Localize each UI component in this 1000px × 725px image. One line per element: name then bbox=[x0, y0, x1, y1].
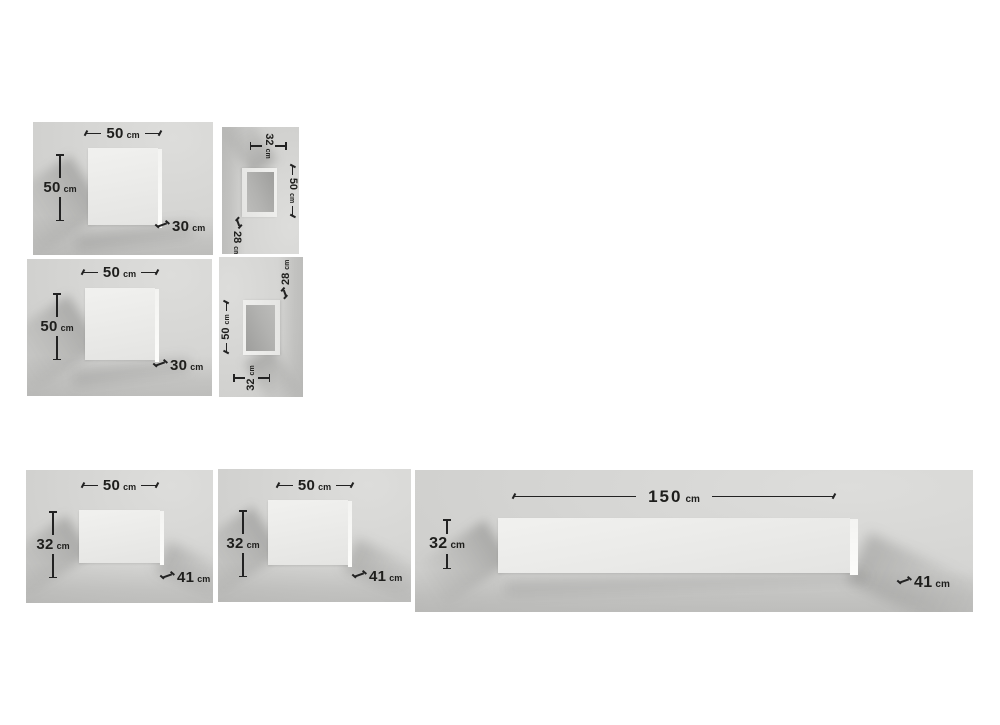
dimension-tick bbox=[354, 572, 364, 577]
width-unit: cm bbox=[685, 495, 699, 505]
rotated-photo-content: 50 cm 32 cm 28 c bbox=[219, 257, 303, 397]
depth-dimension: 28 cm bbox=[281, 260, 292, 297]
depth-value: 28 bbox=[231, 231, 242, 243]
height-value: 32 bbox=[36, 537, 53, 552]
dimension-line bbox=[83, 272, 98, 274]
height-dimension: 50 cm bbox=[38, 155, 82, 220]
depth-value: 41 bbox=[914, 575, 932, 591]
width-value: 50 bbox=[103, 478, 120, 493]
depth-dimension: 30 cm bbox=[155, 358, 203, 373]
height-dimension: 50 cm bbox=[35, 294, 79, 359]
width-value: 150 bbox=[648, 488, 682, 505]
dimension-line bbox=[226, 343, 228, 352]
box-side-face bbox=[155, 289, 159, 362]
dimension-label: 50 cm bbox=[40, 319, 73, 334]
height-unit: cm bbox=[61, 324, 74, 333]
depth-unit: cm bbox=[197, 575, 210, 584]
width-value: 50 bbox=[298, 478, 315, 493]
dimension-label: 50 cm bbox=[106, 126, 139, 141]
dimension-label: 30 cm bbox=[172, 219, 205, 234]
photo-scene: 50 cm 50 cm 30 cm bbox=[27, 259, 212, 396]
depth-dimension: 30 cm bbox=[157, 219, 205, 234]
dimension-line bbox=[514, 496, 636, 498]
height-unit: cm bbox=[247, 541, 260, 550]
dimension-line bbox=[234, 377, 245, 379]
photo-scene: 50 cm 32 cm 41 cm bbox=[26, 470, 213, 603]
dimension-label: 32 cm bbox=[429, 536, 465, 552]
dimension-line bbox=[292, 166, 294, 175]
dimension-tick bbox=[236, 219, 240, 226]
depth-unit: cm bbox=[190, 363, 203, 372]
photo-scene: 150 cm 32 cm 41 cm bbox=[415, 470, 973, 612]
height-unit: cm bbox=[57, 542, 70, 551]
dimension-line bbox=[83, 485, 98, 487]
dimension-tick bbox=[899, 578, 909, 583]
dimension-label: 32 cm bbox=[226, 536, 259, 551]
photo-scene: 50 cm 32 cm 28 c bbox=[219, 257, 303, 397]
width-value: 50 bbox=[106, 126, 123, 141]
height-unit: cm bbox=[64, 185, 77, 194]
depth-unit: cm bbox=[232, 246, 239, 254]
depth-dimension: 41 cm bbox=[162, 570, 210, 585]
height-value: 32 bbox=[246, 378, 257, 390]
depth-unit: cm bbox=[389, 574, 402, 583]
dimension-line bbox=[292, 206, 294, 215]
box-interior bbox=[247, 172, 274, 212]
dimension-label: 50 cm bbox=[298, 478, 331, 493]
dimension-label: 28 cm bbox=[281, 260, 292, 285]
dimension-label: 150 cm bbox=[648, 488, 700, 505]
height-unit: cm bbox=[249, 365, 256, 375]
dimension-line bbox=[52, 512, 54, 535]
width-unit: cm bbox=[288, 193, 295, 203]
shelf-box bbox=[268, 500, 348, 565]
dimension-line bbox=[251, 145, 262, 147]
width-unit: cm bbox=[123, 483, 136, 492]
depth-unit: cm bbox=[935, 580, 949, 590]
height-dimension: 32 cm bbox=[425, 520, 469, 568]
width-dimension: 50 cm bbox=[26, 478, 213, 493]
height-dimension: 32 cm bbox=[221, 511, 265, 576]
width-unit: cm bbox=[123, 270, 136, 279]
dimension-label: 50 cm bbox=[103, 478, 136, 493]
dimension-line bbox=[59, 197, 61, 220]
height-value: 32 bbox=[226, 536, 243, 551]
dimension-line bbox=[242, 553, 244, 576]
dimension-line bbox=[52, 554, 54, 577]
open-box bbox=[242, 168, 277, 217]
shelf-box bbox=[498, 518, 850, 573]
depth-value: 30 bbox=[172, 219, 189, 234]
dimension-line bbox=[336, 485, 351, 487]
dimension-line bbox=[141, 272, 156, 274]
height-value: 50 bbox=[43, 180, 60, 195]
dimension-tick bbox=[162, 573, 172, 578]
box-side-face bbox=[850, 519, 858, 575]
dimension-label: 50 cm bbox=[221, 314, 232, 339]
depth-unit: cm bbox=[284, 260, 291, 270]
depth-dimension: 41 cm bbox=[354, 569, 402, 584]
dimension-line bbox=[275, 145, 286, 147]
dimension-line bbox=[242, 511, 244, 534]
open-box bbox=[243, 300, 280, 355]
width-value: 50 bbox=[221, 327, 232, 339]
width-unit: cm bbox=[127, 131, 140, 140]
width-dimension: 50 cm bbox=[221, 257, 232, 397]
photo-scene: 50 cm 50 cm 30 cm bbox=[33, 122, 213, 255]
height-dimension: 32 cm bbox=[251, 131, 286, 161]
photo-cube-front-1[interactable]: 50 cm 50 cm 30 cm bbox=[33, 122, 213, 255]
photo-scene: 50 cm 32 cm 28 c bbox=[222, 127, 299, 254]
height-dimension: 32 cm bbox=[234, 363, 269, 393]
depth-value: 30 bbox=[170, 358, 187, 373]
dimension-line bbox=[446, 554, 448, 568]
depth-dimension: 41 cm bbox=[899, 575, 950, 591]
dimension-line bbox=[59, 155, 61, 178]
box-side-face bbox=[160, 511, 164, 565]
depth-value: 28 bbox=[281, 273, 292, 285]
photo-shelf-front-1[interactable]: 50 cm 32 cm 41 cm bbox=[26, 470, 213, 603]
dimension-line bbox=[226, 302, 228, 311]
height-unit: cm bbox=[450, 541, 464, 551]
width-dimension: 50 cm bbox=[218, 478, 411, 493]
photo-scene: 50 cm 32 cm 41 cm bbox=[218, 469, 411, 602]
height-value: 32 bbox=[429, 536, 447, 552]
dimension-label: 41 cm bbox=[177, 570, 210, 585]
dimension-label: 32 cm bbox=[36, 537, 69, 552]
dimension-label: 28 cm bbox=[231, 231, 242, 254]
width-dimension: 50 cm bbox=[33, 126, 213, 141]
height-dimension: 32 cm bbox=[31, 512, 75, 577]
box-side-face bbox=[158, 149, 162, 228]
photo-shelf-front-long[interactable]: 150 cm 32 cm 41 cm bbox=[415, 470, 973, 612]
dimension-line bbox=[712, 496, 834, 498]
dimension-label: 50 cm bbox=[103, 265, 136, 280]
dimension-line bbox=[446, 520, 448, 534]
depth-value: 41 bbox=[369, 569, 386, 584]
dimension-label: 30 cm bbox=[170, 358, 203, 373]
dimension-line bbox=[258, 377, 269, 379]
photo-cube-front-2[interactable]: 50 cm 50 cm 30 cm bbox=[27, 259, 212, 396]
dimension-line bbox=[86, 133, 101, 135]
box-interior bbox=[246, 305, 275, 351]
dimension-label: 41 cm bbox=[914, 575, 950, 591]
height-value: 50 bbox=[40, 319, 57, 334]
dimension-line bbox=[278, 485, 293, 487]
height-unit: cm bbox=[264, 149, 271, 159]
depth-value: 41 bbox=[177, 570, 194, 585]
page: 50 cm 50 cm 30 cm bbox=[0, 0, 1000, 725]
dimension-tick bbox=[283, 290, 287, 297]
width-unit: cm bbox=[224, 314, 231, 324]
dimension-line bbox=[141, 485, 156, 487]
rotated-photo-content: 50 cm 32 cm 28 c bbox=[222, 127, 299, 254]
height-value: 32 bbox=[263, 133, 274, 145]
width-dimension: 150 cm bbox=[415, 488, 933, 505]
photo-open-box-rotated-cw[interactable]: 50 cm 32 cm 28 c bbox=[222, 127, 299, 254]
cabinet-box bbox=[88, 148, 158, 225]
dimension-line bbox=[145, 133, 160, 135]
photo-open-box-rotated-ccw[interactable]: 50 cm 32 cm 28 c bbox=[219, 257, 303, 397]
dimension-tick bbox=[155, 361, 165, 366]
dimension-label: 50 cm bbox=[287, 178, 298, 203]
dimension-label: 41 cm bbox=[369, 569, 402, 584]
dimension-line bbox=[56, 294, 58, 317]
dimension-tick bbox=[157, 222, 167, 227]
width-dimension: 50 cm bbox=[287, 127, 298, 254]
dimension-label: 32 cm bbox=[263, 133, 274, 158]
width-dimension: 50 cm bbox=[27, 265, 212, 280]
depth-unit: cm bbox=[192, 224, 205, 233]
box-side-face bbox=[348, 501, 352, 567]
dimension-label: 50 cm bbox=[43, 180, 76, 195]
floor-shadow bbox=[415, 569, 973, 612]
cabinet-box bbox=[85, 288, 155, 360]
shelf-box bbox=[79, 510, 160, 563]
photo-shelf-front-2[interactable]: 50 cm 32 cm 41 cm bbox=[218, 469, 411, 602]
width-value: 50 bbox=[103, 265, 120, 280]
dimension-label: 32 cm bbox=[246, 365, 257, 390]
dimension-line bbox=[56, 336, 58, 359]
depth-dimension: 28 cm bbox=[231, 219, 242, 254]
width-unit: cm bbox=[318, 483, 331, 492]
width-value: 50 bbox=[287, 178, 298, 190]
